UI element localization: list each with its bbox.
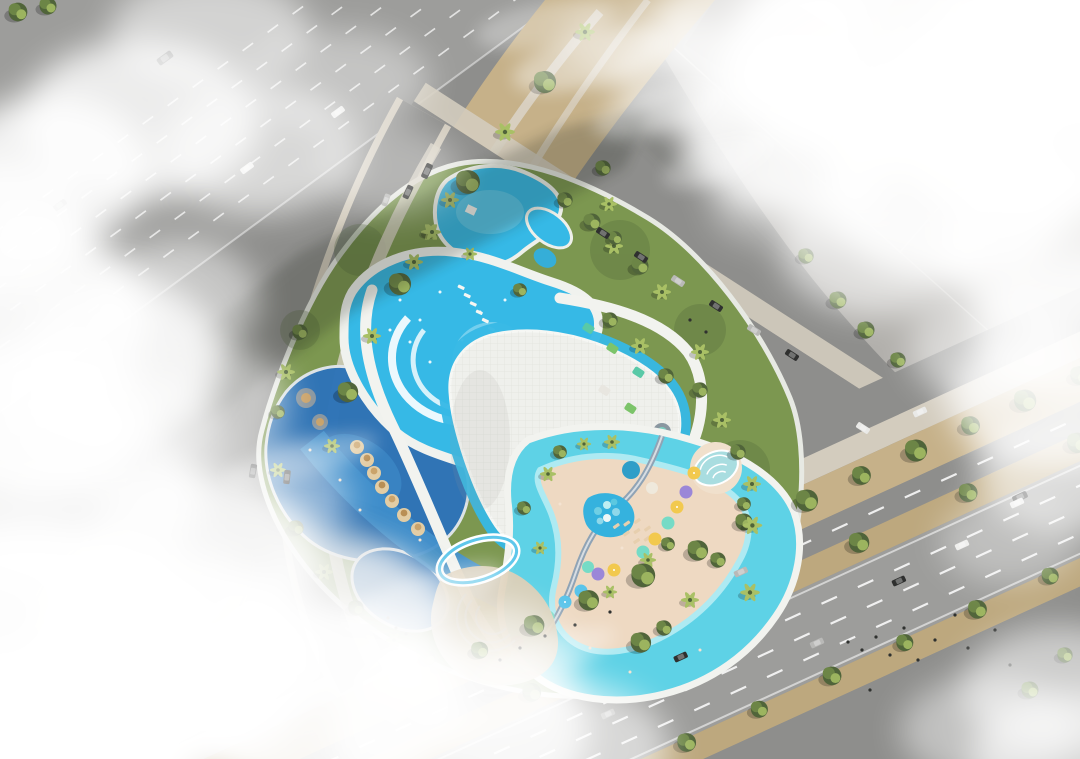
aerial-scene bbox=[0, 0, 1080, 759]
aerial-render: Top-down aerial architectural rendering … bbox=[0, 0, 1080, 759]
